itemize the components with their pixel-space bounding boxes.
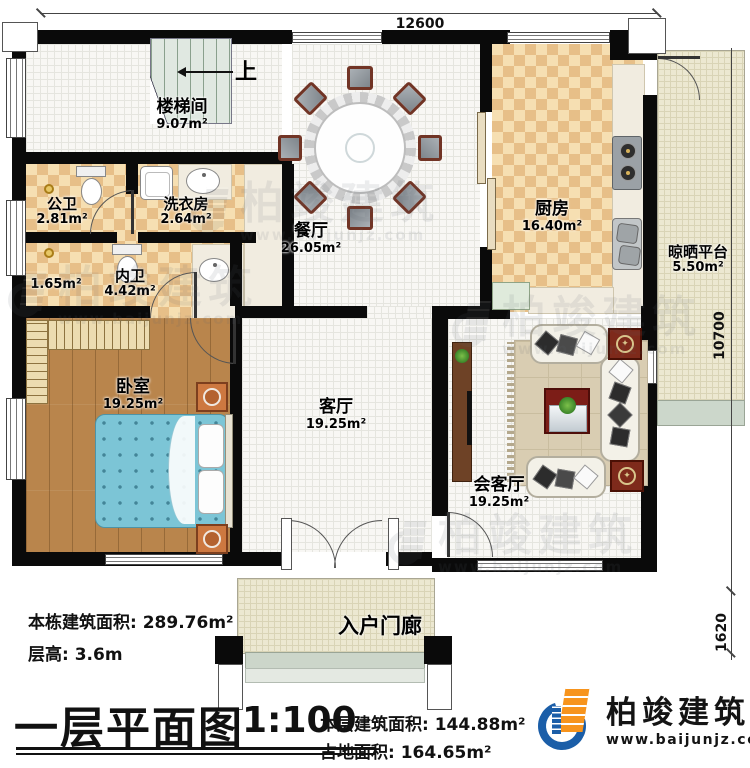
stair-direction-arrow xyxy=(185,71,233,73)
chair-icon xyxy=(418,135,442,161)
pillow-icon xyxy=(573,464,598,489)
bed-sheet-fold xyxy=(168,416,195,524)
company-logo-icon xyxy=(538,686,598,758)
room-label-public-bath: 公卫2.81m² xyxy=(22,196,102,228)
kitchen-counter-bottom xyxy=(528,287,614,314)
side-table: ✦ xyxy=(608,328,642,360)
stair-arrow-head xyxy=(177,67,186,77)
platform-door-leaf xyxy=(658,56,700,59)
window xyxy=(6,398,26,480)
rug-fringe xyxy=(507,342,514,482)
tv-icon xyxy=(467,391,472,445)
window xyxy=(477,560,603,571)
wardrobe xyxy=(48,320,150,350)
compass-medallion: ✦ xyxy=(616,335,634,353)
floor-height-text: 层高: 3.6m xyxy=(28,640,123,665)
living-floor xyxy=(242,318,432,552)
room-label-porch: 入户门廊 xyxy=(290,614,470,638)
reception-door-leaf xyxy=(447,512,450,557)
pillow-icon xyxy=(556,334,578,356)
wall-segment xyxy=(480,247,492,306)
company-logo: 柏竣建筑 www.baijunjz.com xyxy=(538,686,750,758)
floor-plan: 上 xyxy=(0,0,750,768)
pillow-icon xyxy=(555,469,576,490)
company-website: www.baijunjz.com xyxy=(606,732,750,748)
bedroom-door-leaf xyxy=(233,318,236,364)
stove-icon xyxy=(612,136,642,190)
lazy-susan xyxy=(345,133,375,163)
ensuite-door-leaf xyxy=(194,272,197,318)
window xyxy=(292,32,382,43)
nightstand xyxy=(196,524,228,554)
faucet-dot xyxy=(213,263,217,267)
faucet-dot xyxy=(202,173,206,177)
burner xyxy=(620,143,636,159)
wall-segment xyxy=(12,306,150,318)
toilet-tank xyxy=(112,244,142,255)
entry-door-panel xyxy=(388,518,399,570)
sink-basin xyxy=(618,245,641,267)
sink-basin xyxy=(616,223,639,245)
room-label-living: 客厅19.25m² xyxy=(276,398,396,432)
dimension-right-label: 10700 xyxy=(712,280,728,360)
tv-cabinet xyxy=(452,342,472,482)
porch-pillar-base xyxy=(427,664,452,710)
pillow-icon xyxy=(607,402,632,427)
nightstand xyxy=(196,382,228,412)
sink-icon xyxy=(186,168,220,194)
wardrobe-side xyxy=(26,320,48,404)
dimension-line-top xyxy=(40,13,658,14)
burner xyxy=(620,165,636,181)
room-label-stairwell: 楼梯间9.07m² xyxy=(130,98,234,132)
dimension-line-right xyxy=(731,48,732,660)
fridge-icon xyxy=(492,282,530,310)
pillow-icon xyxy=(608,358,633,383)
side-table: ✦ xyxy=(610,460,644,492)
wall-segment xyxy=(138,232,256,243)
pillow-icon xyxy=(608,381,631,404)
room-label-closet: 1.65m² xyxy=(24,278,88,293)
floor-area-text: 本层建筑面积: 144.88m² xyxy=(320,710,525,735)
wall-hook-icon xyxy=(44,184,54,194)
public-bath-door-leaf xyxy=(131,190,134,234)
sofa-chaise xyxy=(530,324,608,364)
plant-icon xyxy=(455,349,469,363)
coffee-table xyxy=(544,388,590,434)
pillow-icon xyxy=(534,330,559,355)
wall-segment xyxy=(382,30,510,44)
room-label-ensuite-bath: 内卫4.42m² xyxy=(90,268,170,300)
pillow-icon xyxy=(576,331,601,356)
bed-pillow xyxy=(198,424,224,468)
chair-icon xyxy=(347,66,373,90)
entry-door-panel xyxy=(281,518,292,570)
toilet-tank xyxy=(76,166,106,177)
room-label-bedroom: 卧室19.25m² xyxy=(83,378,183,412)
compass-medallion: ✦ xyxy=(618,467,636,485)
sofa-long xyxy=(600,356,640,462)
stair-up-label: 上 xyxy=(235,54,257,86)
dimension-top-label: 12600 xyxy=(380,16,460,32)
window xyxy=(507,32,610,43)
wall-segment xyxy=(230,243,242,306)
lamp-icon xyxy=(203,388,221,406)
room-label-reception: 会客厅19.25m² xyxy=(444,476,554,510)
room-label-laundry: 洗衣房2.64m² xyxy=(136,196,236,228)
pillow-icon xyxy=(610,427,631,448)
bed-pillow xyxy=(198,470,224,514)
window xyxy=(6,58,26,138)
window xyxy=(105,554,223,565)
lamp-icon xyxy=(203,530,221,548)
company-name: 柏竣建筑 xyxy=(606,696,750,732)
dimension-right-lower-label: 1620 xyxy=(714,604,730,652)
bed-headboard xyxy=(225,414,233,528)
dining-table-set xyxy=(304,92,416,204)
building-total-area-text: 本栋建筑面积: 289.76m² xyxy=(28,608,233,633)
plant-icon xyxy=(559,397,576,414)
corner-column xyxy=(2,22,38,52)
wall-segment xyxy=(230,552,286,566)
chair-icon xyxy=(278,135,302,161)
wall-segment xyxy=(480,44,492,112)
room-label-dining: 餐厅26.05m² xyxy=(250,222,372,256)
wall-segment xyxy=(12,152,292,164)
kitchen-sink-icon xyxy=(612,218,642,270)
kitchen-sliding-door xyxy=(477,112,486,184)
room-label-kitchen: 厨房16.40m² xyxy=(492,200,612,234)
sink-icon xyxy=(199,258,229,282)
footprint-area-text: 占地面积: 164.65m² xyxy=(320,738,491,763)
corner-column xyxy=(628,18,666,54)
passage-floor xyxy=(367,306,432,318)
washer-drum xyxy=(145,172,170,197)
porch-pillar xyxy=(215,636,243,664)
wall-hook-icon xyxy=(44,248,54,258)
porch-pillar xyxy=(424,636,452,664)
wall-segment xyxy=(235,306,367,318)
porch-step-2 xyxy=(245,668,425,683)
